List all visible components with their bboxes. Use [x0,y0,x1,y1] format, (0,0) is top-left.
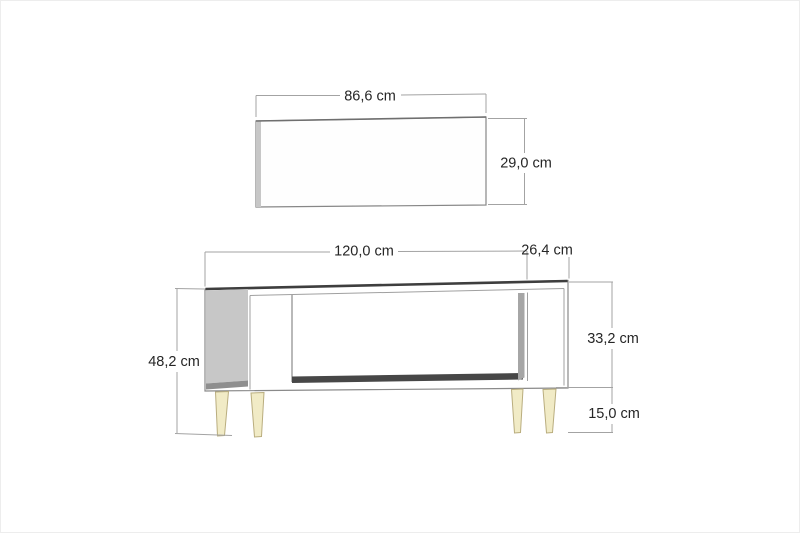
stand-left-side-panel [206,289,248,384]
dimension-line [401,94,486,95]
wall-panel-width-dimension: 86,6 cm [256,89,486,118]
wall-panel-width-label: 86,6 cm [344,89,396,105]
tv-stand-drawing [205,281,568,438]
stand-width-label: 120,0 cm [334,244,394,260]
leg-height-dimension: 15,0 cm [568,388,640,433]
wall-panel-left-edge [256,121,261,207]
wall-panel-height-dimension: 29,0 cm [488,119,552,205]
leg-rear-right [512,389,524,433]
dimension-line [398,251,527,252]
wall-panel-height-label: 29,0 cm [500,156,552,172]
stand-depth-dimension: 26,4 cm [521,243,573,279]
leg-rear-left [216,392,229,437]
stand-body-height-label: 33,2 cm [587,331,639,347]
furniture-dimension-diagram: 86,6 cm 29,0 cm 120,0 cm [0,0,800,533]
wall-panel-face [256,117,486,207]
extension-line [175,289,204,290]
leg-height-label: 15,0 cm [588,406,640,422]
stand-width-dimension: 120,0 cm [205,244,527,287]
stand-total-height-label: 48,2 cm [148,354,200,370]
leg-front-right [543,389,556,433]
stand-depth-label: 26,4 cm [521,243,573,259]
stand-legs [216,389,557,437]
compartment-right-wall [518,293,525,381]
wall-panel-drawing [256,117,486,207]
leg-front-left [251,393,264,438]
